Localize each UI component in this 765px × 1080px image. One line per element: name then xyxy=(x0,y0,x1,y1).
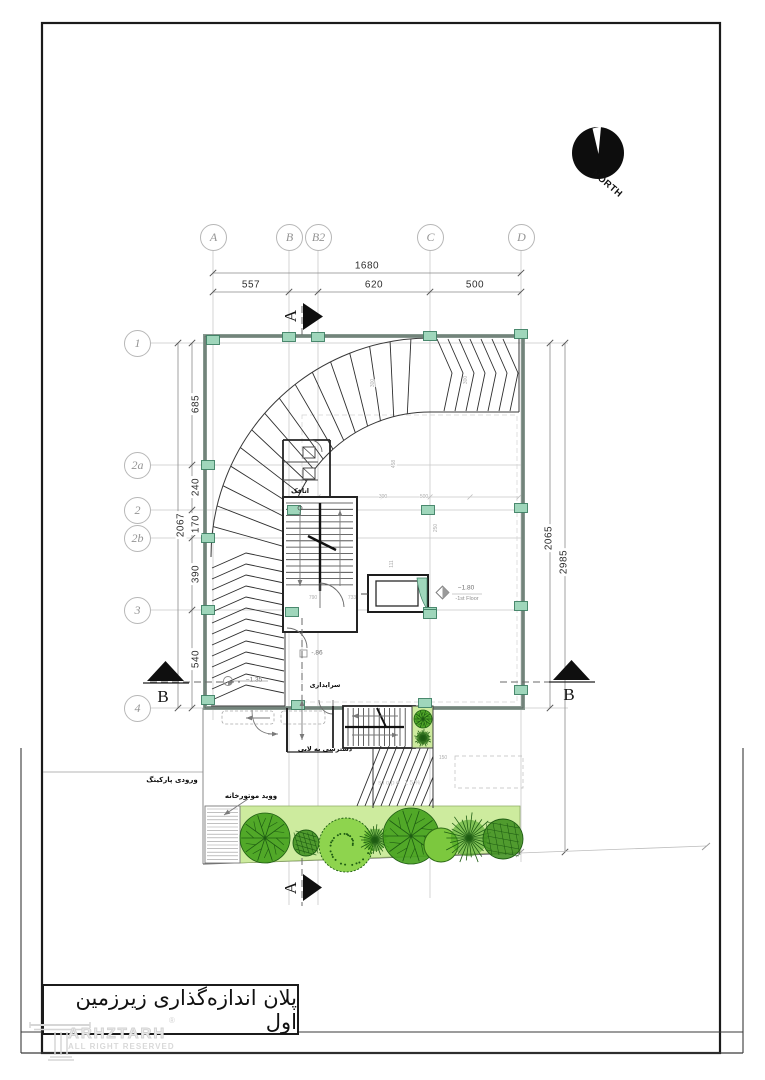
elevator xyxy=(361,575,428,612)
watermark-rights: ALL RIGHT RESERVED xyxy=(68,1042,175,1051)
small-rooms xyxy=(283,440,330,497)
column xyxy=(286,608,299,617)
column xyxy=(202,696,215,705)
parking-ramp xyxy=(211,338,519,706)
watermark: ARHZTARH ® ALL RIGHT RESERVED xyxy=(28,995,258,1065)
tree-scribble xyxy=(293,830,319,856)
column xyxy=(515,686,528,695)
north-arrow-icon xyxy=(572,127,624,180)
registered-icon: ® xyxy=(169,1016,175,1025)
drawing-sheet: ABB2CD12a22b3416805576205006852401703905… xyxy=(0,0,765,1080)
column xyxy=(207,336,220,345)
entrance-stair xyxy=(343,706,415,748)
column xyxy=(202,606,215,615)
column xyxy=(424,610,437,619)
column xyxy=(419,699,432,708)
building-walls xyxy=(205,336,523,708)
mech-void xyxy=(205,806,240,863)
column xyxy=(424,332,437,341)
entrance-walls xyxy=(287,706,333,752)
tree-scribble xyxy=(483,819,523,859)
column xyxy=(515,504,528,513)
tree-fern xyxy=(414,710,432,728)
column xyxy=(202,534,215,543)
column xyxy=(422,506,435,515)
column xyxy=(312,333,325,342)
floor-plan-canvas xyxy=(0,0,765,1080)
entrance-ramp xyxy=(357,746,433,808)
column xyxy=(515,602,528,611)
column xyxy=(515,330,528,339)
column xyxy=(202,461,215,470)
column xyxy=(283,333,296,342)
tree-fern xyxy=(240,813,290,863)
watermark-brand: ARHZTARH xyxy=(68,1025,166,1042)
